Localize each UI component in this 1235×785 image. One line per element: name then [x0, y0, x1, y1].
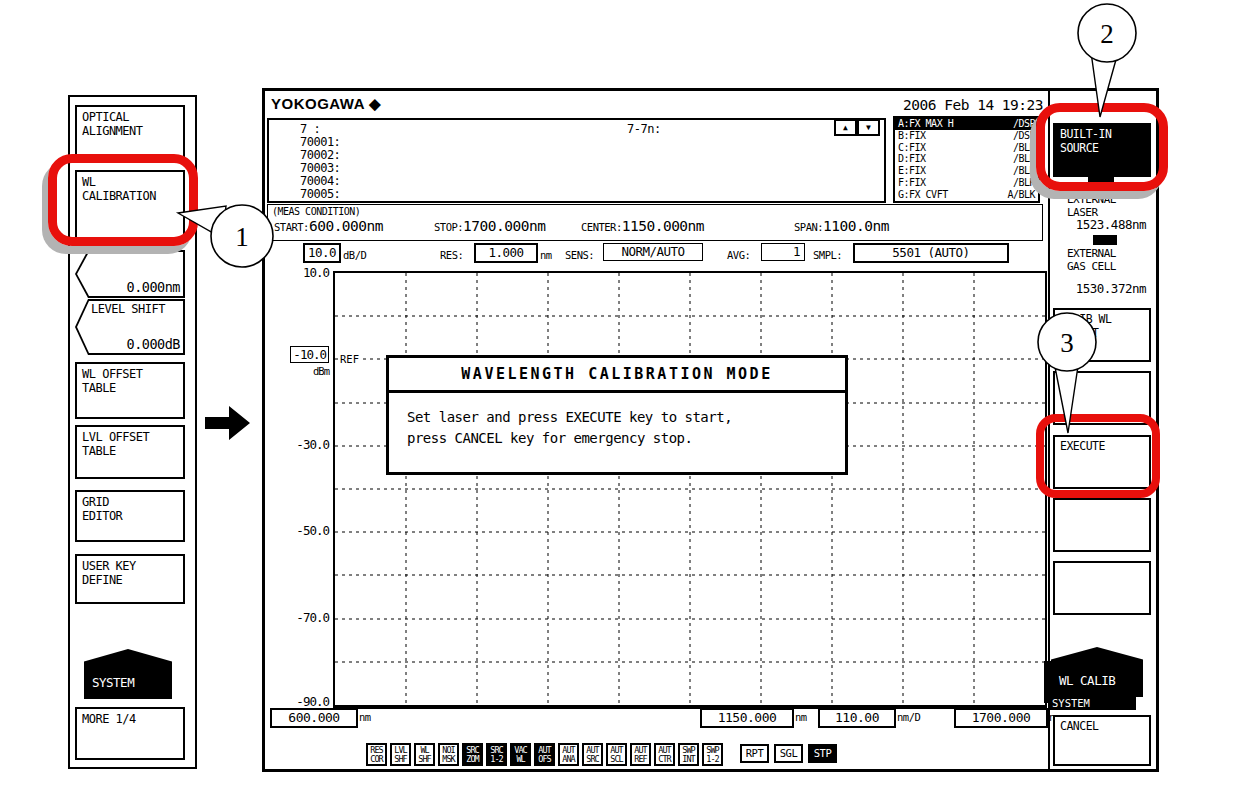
ref-level-box: -10.0 — [290, 346, 329, 363]
softkey-value: 0.000nm — [127, 279, 180, 295]
trace-mode: A:FX MAX H — [898, 118, 953, 130]
trace-display: /DSP — [1013, 130, 1035, 142]
meas-stop: STOP:1700.000nm — [434, 218, 545, 234]
parameter-row: 10.0 dB/D RES: 1.000 nm SENS: NORM/AUTO … — [265, 243, 1043, 263]
highlight-ring-step1 — [48, 154, 198, 246]
res-label: RES: — [440, 249, 463, 261]
status-res-cor: RES COR — [366, 743, 387, 766]
trace-row-g: G:FX CVFTA/BLK — [895, 189, 1038, 201]
status-wl-shf: WL SHF — [414, 743, 435, 766]
menu-indicator-system: SYSTEM — [1048, 697, 1136, 710]
softkey-blank-3[interactable] — [1053, 561, 1151, 615]
softkey-grid-editor[interactable]: GRID EDITOR — [75, 490, 185, 542]
arrow-icon — [205, 406, 250, 440]
label-row: 70005: — [300, 188, 340, 201]
softkey-more-1-4[interactable]: MORE 1/4 — [75, 707, 185, 760]
highlight-ring-step2 — [1036, 103, 1168, 191]
sweep-rpt: RPT — [740, 744, 769, 763]
start-label: START: — [274, 221, 309, 233]
res-value: 1.000 — [474, 243, 538, 263]
trace-mode: D:FIX — [898, 153, 926, 165]
trace-display: /BLK — [1013, 153, 1035, 165]
level-scale-unit: dB/D — [343, 249, 366, 261]
softkey-label: EXTERNAL LASER — [1067, 193, 1116, 219]
status-aut-ofs: AUT OFS — [534, 743, 555, 766]
grid — [335, 273, 1045, 705]
y-axis-label-70: -70.0 — [283, 610, 329, 625]
meas-center: CENTER:1150.000nm — [581, 218, 704, 234]
status-noi-msk: NOI MSK — [438, 743, 459, 766]
trace-mode: E:FIX — [898, 165, 926, 177]
menu-label: WL CALIB — [1059, 673, 1115, 688]
trace-display: /DSP — [1013, 118, 1035, 130]
down-triangle-icon[interactable]: ▼ — [857, 119, 880, 136]
status-aut-src: AUT SRC — [582, 743, 603, 766]
stop-value: 1700.000nm — [463, 218, 545, 234]
trace-mode: G:FX CVFT — [898, 189, 948, 201]
softkey-wl-offset-table[interactable]: WL OFFSET TABLE — [75, 362, 185, 419]
trace-display: A/BLK — [1007, 189, 1035, 201]
dialog-line-2: press CANCEL key for emergency stop. — [407, 428, 827, 449]
center-label: CENTER: — [581, 221, 622, 233]
sens-label: SENS: — [565, 249, 594, 261]
y-axis-unit: dBm — [283, 365, 329, 377]
softkey-cancel[interactable]: CANCEL — [1053, 715, 1151, 766]
dialog-body: Set laser and press EXECUTE key to start… — [389, 393, 845, 449]
softkey-external-gas-cell[interactable]: EXTERNAL GAS CELL 1530.372nm — [1051, 245, 1151, 299]
trace-status-box: A:FX MAX H/DSP B:FIX/DSP C:FIX/BLK D:FIX… — [893, 116, 1040, 203]
x-center-value: 1150.000 — [700, 708, 794, 728]
y-axis-label-top: 10.0 — [283, 265, 329, 280]
status-src-1-2: SRC 1-2 — [486, 743, 507, 766]
figure: OPTICAL ALIGNMENT WL CALIBRATION 0.000nm… — [0, 0, 1235, 785]
trace-row-d: D:FIX/BLK — [895, 153, 1038, 165]
trace-row-e: E:FIX/BLK — [895, 165, 1038, 177]
dialog-line-1: Set laser and press EXECUTE key to start… — [407, 407, 827, 428]
status-aut-scl: AUT SCL — [606, 743, 627, 766]
dialog-title: WAVELENGTH CALIBRATION MODE — [389, 358, 845, 393]
span-label: SPAN: — [794, 221, 823, 233]
x-axis-center: 1150.000nm — [700, 708, 807, 728]
x-stop-value: 1700.000 — [954, 708, 1048, 728]
ref-marker: REF — [338, 353, 361, 365]
meas-span: SPAN:1100.0nm — [794, 218, 889, 234]
status-swp-int: SWP INT — [678, 743, 699, 766]
trace-row-f: F:FIX/BLK — [895, 177, 1038, 189]
spectrum-plot-area: REF — [333, 271, 1047, 709]
softkey-blank-2[interactable] — [1053, 498, 1151, 552]
x-axis-scale: 110.00nm/D — [818, 708, 920, 728]
y-axis-label-90: -90.0 — [283, 694, 329, 709]
status-vac-wl: VAC WL — [510, 743, 531, 766]
softkey-value: 1523.488nm — [1076, 217, 1146, 232]
avg-label: AVG: — [727, 249, 750, 261]
up-triangle-icon[interactable]: ▲ — [834, 119, 857, 136]
status-aut-ana: AUT ANA — [558, 743, 579, 766]
span-value: 1100.0nm — [823, 218, 889, 234]
trace-mode: C:FIX — [898, 142, 926, 154]
trace-row-a: A:FX MAX H/DSP — [895, 118, 1038, 130]
smpl-label: SMPL: — [813, 249, 842, 261]
y-axis-ref-level: -10.0 — [283, 347, 329, 362]
stop-label: STOP: — [434, 221, 463, 233]
x-axis-start: 600.000nm — [270, 708, 371, 728]
status-swp-1-2: SWP 1-2 — [702, 743, 723, 766]
softkey-value: 0.000dB — [127, 336, 180, 352]
softkey-label: EXTERNAL GAS CELL — [1067, 247, 1116, 273]
meas-condition-title: (MEAS CONDITION) — [272, 206, 360, 217]
highlight-ring-step3 — [1036, 414, 1160, 498]
x-scale-unit: nm/D — [897, 711, 920, 723]
sens-value: NORM/AUTO — [603, 243, 703, 261]
trace-formula: 7-7n: — [627, 123, 661, 136]
center-value: 1150.000nm — [622, 218, 704, 234]
brand-logo: YOKOGAWA ◆ — [271, 95, 381, 113]
trace-row-c: C:FIX/BLK — [895, 142, 1038, 154]
x-start-unit: nm — [359, 711, 371, 723]
sweep-stp: STP — [808, 744, 837, 763]
status-src-zom: SRC ZOM — [462, 743, 483, 766]
osa-screen: YOKOGAWA ◆ 2006 Feb 14 19:23 7 : 70001: … — [262, 88, 1159, 772]
y-axis-label-50: -50.0 — [283, 523, 329, 538]
trace-display: /BLK — [1013, 177, 1035, 189]
x-scale-value: 110.00 — [818, 708, 896, 728]
trace-display: /BLK — [1013, 165, 1035, 177]
menu-indicator-wl-calib: WL CALIB — [1051, 647, 1143, 697]
softkey-label: LEVEL SHIFT — [91, 302, 165, 316]
trace-display: /BLK — [1013, 142, 1035, 154]
start-value: 600.000nm — [309, 218, 383, 234]
softkey-system[interactable]: SYSTEM — [84, 649, 172, 699]
res-unit: nm — [540, 249, 552, 261]
callout-1-number: 1 — [235, 222, 249, 252]
softkey-external-laser[interactable]: EXTERNAL LASER 1523.488nm — [1051, 191, 1151, 235]
meas-condition-box: (MEAS CONDITION) START:600.000nm STOP:17… — [267, 204, 1043, 241]
scroll-buttons: ▲ ▼ — [834, 119, 880, 136]
softkey-lvl-offset-table[interactable]: LVL OFFSET TABLE — [75, 425, 185, 479]
trace-mode: F:FIX — [898, 177, 926, 189]
label-area: 7 : 70001: 70002: 70003: 70004: 70005: 7… — [267, 118, 886, 203]
level-scale-value: 10.0 — [303, 243, 341, 263]
trace-row-b: B:FIX/DSP — [895, 130, 1038, 142]
callout-2-number: 2 — [1100, 19, 1114, 49]
softkey-label: SYSTEM — [92, 675, 134, 690]
trace-mode: B:FIX — [898, 130, 926, 142]
meas-start: START:600.000nm — [274, 218, 383, 234]
avg-value: 1 — [761, 243, 805, 261]
softkey-calib-wl-select[interactable]: CALIB WL SELECT — [1053, 308, 1151, 362]
x-axis-stop: 1700.000nm — [954, 708, 1061, 728]
y-axis-label-30: -30.0 — [283, 437, 329, 452]
x-center-unit: nm — [795, 711, 807, 723]
softkey-value: 1530.372nm — [1076, 281, 1146, 296]
softkey-level-shift[interactable]: LEVEL SHIFT 0.000dB — [75, 299, 185, 355]
softkey-user-key-define[interactable]: USER KEY DEFINE — [75, 554, 185, 604]
status-aut-ref: AUT REF — [630, 743, 651, 766]
sweep-sgl: SGL — [774, 744, 803, 763]
connector-tab — [1093, 235, 1117, 245]
x-start-value: 600.000 — [270, 708, 358, 728]
wavelength-calibration-dialog: WAVELENGTH CALIBRATION MODE Set laser an… — [386, 355, 848, 475]
status-aut-ctr: AUT CTR — [654, 743, 675, 766]
softkey-wl-shift[interactable]: 0.000nm — [75, 250, 185, 298]
status-lvl-shf: LVL SHF — [390, 743, 411, 766]
smpl-value: 5501 (AUTO) — [853, 243, 1009, 263]
datetime: 2006 Feb 14 19:23 — [903, 97, 1043, 113]
